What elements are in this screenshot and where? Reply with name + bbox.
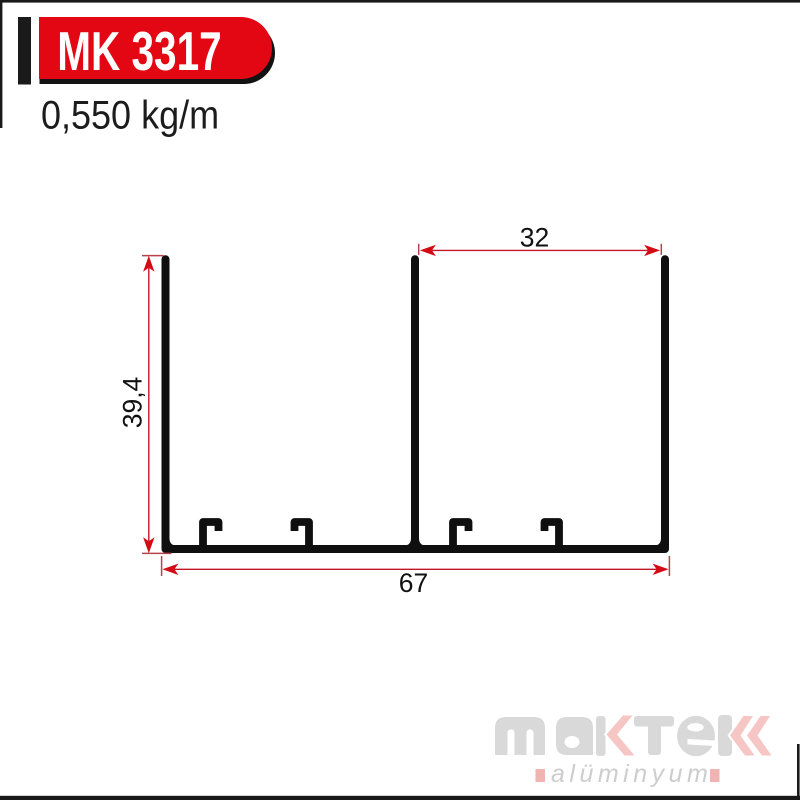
- svg-text:32: 32: [520, 223, 549, 253]
- svg-text:39,4: 39,4: [118, 377, 148, 429]
- svg-text:0,550 kg/m: 0,550 kg/m: [41, 94, 219, 138]
- svg-text:MK 3317: MK 3317: [57, 23, 221, 83]
- svg-text:alüminyum: alüminyum: [551, 760, 712, 788]
- svg-text:67: 67: [399, 568, 428, 598]
